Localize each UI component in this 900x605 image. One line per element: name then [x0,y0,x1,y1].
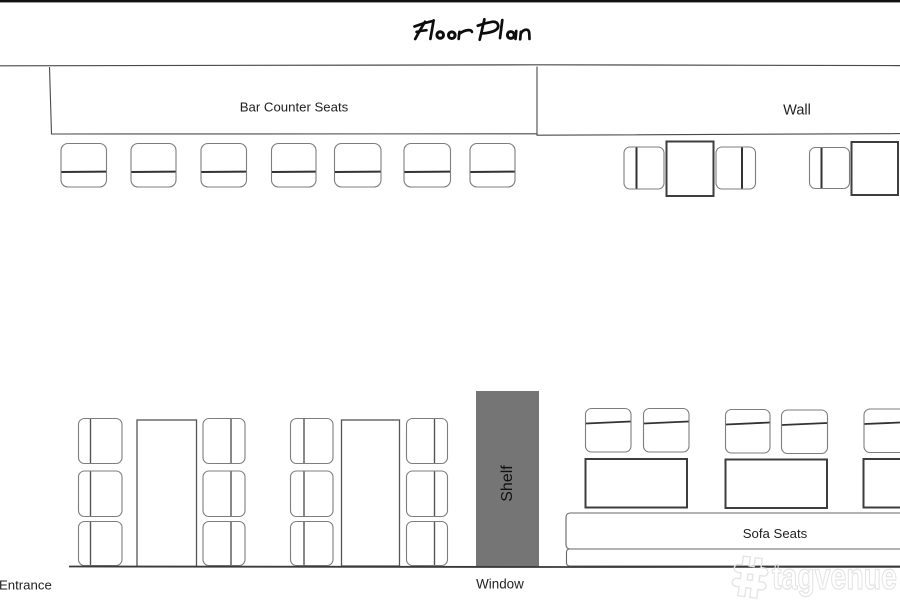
svg-text:Window: Window [476,577,524,592]
svg-text:Shelf: Shelf [499,465,516,502]
svg-text:Wall: Wall [783,103,811,119]
svg-text:Bar Counter Seats: Bar Counter Seats [240,100,349,115]
svg-text:tagvenue: tagvenue [772,556,897,597]
svg-text:Entrance: Entrance [0,578,52,593]
svg-text:Sofa Seats: Sofa Seats [743,526,808,541]
